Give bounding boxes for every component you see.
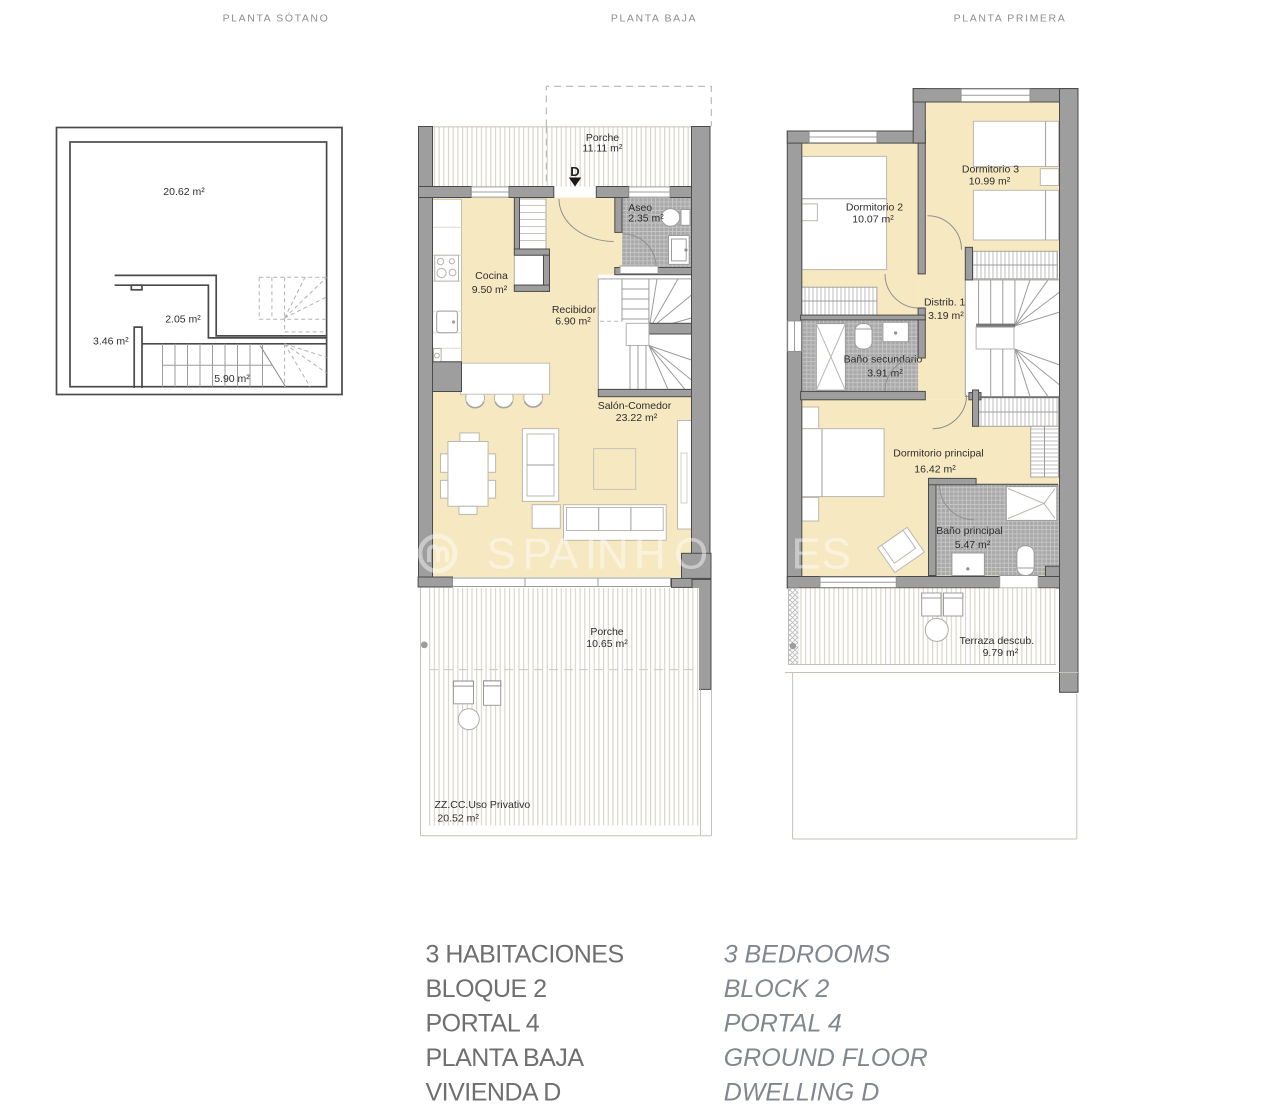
svg-text:Dormitorio 3: Dormitorio 3 [962, 164, 1019, 176]
svg-text:2.05 m²: 2.05 m² [165, 314, 201, 326]
svg-text:PLANTA PRIMERA: PLANTA PRIMERA [954, 13, 1067, 25]
svg-text:2.35 m²: 2.35 m² [628, 213, 664, 225]
svg-text:D: D [570, 164, 579, 179]
svg-text:9.50 m²: 9.50 m² [472, 284, 508, 296]
svg-text:5.90 m²: 5.90 m² [214, 373, 250, 385]
svg-text:N: N [597, 530, 629, 579]
svg-text:PLANTA SÓTANO: PLANTA SÓTANO [223, 12, 330, 25]
svg-text:5.47 m²: 5.47 m² [955, 539, 991, 551]
svg-text:Baño principal: Baño principal [936, 525, 1003, 537]
svg-text:10.07 m²: 10.07 m² [852, 213, 894, 225]
svg-text:BLOQUE 2: BLOQUE 2 [426, 975, 547, 1003]
svg-text:PORTAL 4: PORTAL 4 [724, 1010, 842, 1038]
svg-text:Dormitorio 2: Dormitorio 2 [846, 202, 903, 214]
svg-text:Dormitorio principal: Dormitorio principal [893, 448, 983, 460]
svg-text:Baño secundario: Baño secundario [844, 353, 923, 365]
svg-text:Salón-Comedor: Salón-Comedor [598, 400, 672, 412]
svg-text:PLANTA BAJA: PLANTA BAJA [611, 13, 697, 25]
svg-text:GROUND FLOOR: GROUND FLOOR [724, 1044, 928, 1072]
svg-text:BLOCK 2: BLOCK 2 [724, 975, 830, 1003]
svg-text:E: E [792, 530, 821, 579]
svg-text:9.79 m²: 9.79 m² [983, 647, 1019, 659]
svg-text:Cocina: Cocina [475, 270, 508, 282]
svg-text:PORTAL 4: PORTAL 4 [426, 1010, 540, 1038]
svg-text:Recibidor: Recibidor [552, 304, 597, 316]
svg-text:Terraza descub.: Terraza descub. [959, 635, 1034, 647]
svg-text:DWELLING D: DWELLING D [724, 1079, 880, 1107]
svg-text:3.46 m²: 3.46 m² [93, 335, 129, 347]
svg-text:P: P [523, 530, 552, 579]
svg-text:3.91 m²: 3.91 m² [867, 367, 903, 379]
svg-text:ZZ.CC.Uso Privativo: ZZ.CC.Uso Privativo [435, 799, 531, 811]
svg-text:11.11 m²: 11.11 m² [583, 142, 623, 154]
svg-text:10.99 m²: 10.99 m² [969, 176, 1011, 188]
svg-text:Porche: Porche [590, 626, 623, 638]
svg-text:23.22 m²: 23.22 m² [616, 412, 658, 424]
svg-text:H: H [634, 530, 666, 579]
svg-text:10.65 m²: 10.65 m² [586, 638, 628, 650]
svg-text:I: I [585, 530, 597, 579]
svg-text:3 BEDROOMS: 3 BEDROOMS [724, 941, 891, 969]
svg-text:6.90 m²: 6.90 m² [555, 315, 591, 327]
svg-text:20.52 m²: 20.52 m² [437, 812, 479, 824]
svg-text:VIVIENDA D: VIVIENDA D [426, 1079, 561, 1107]
svg-text:3.19 m²: 3.19 m² [928, 310, 964, 322]
svg-text:M: M [722, 530, 759, 579]
svg-text:PLANTA BAJA: PLANTA BAJA [426, 1044, 585, 1072]
svg-text:3 HABITACIONES: 3 HABITACIONES [426, 941, 624, 969]
svg-text:O: O [674, 530, 708, 579]
svg-text:S: S [822, 530, 851, 579]
svg-text:A: A [549, 530, 579, 579]
svg-text:20.62 m²: 20.62 m² [163, 186, 205, 198]
svg-text:S: S [487, 530, 516, 579]
svg-text:16.42 m²: 16.42 m² [914, 463, 956, 475]
svg-text:Distrib. 1: Distrib. 1 [924, 297, 966, 309]
